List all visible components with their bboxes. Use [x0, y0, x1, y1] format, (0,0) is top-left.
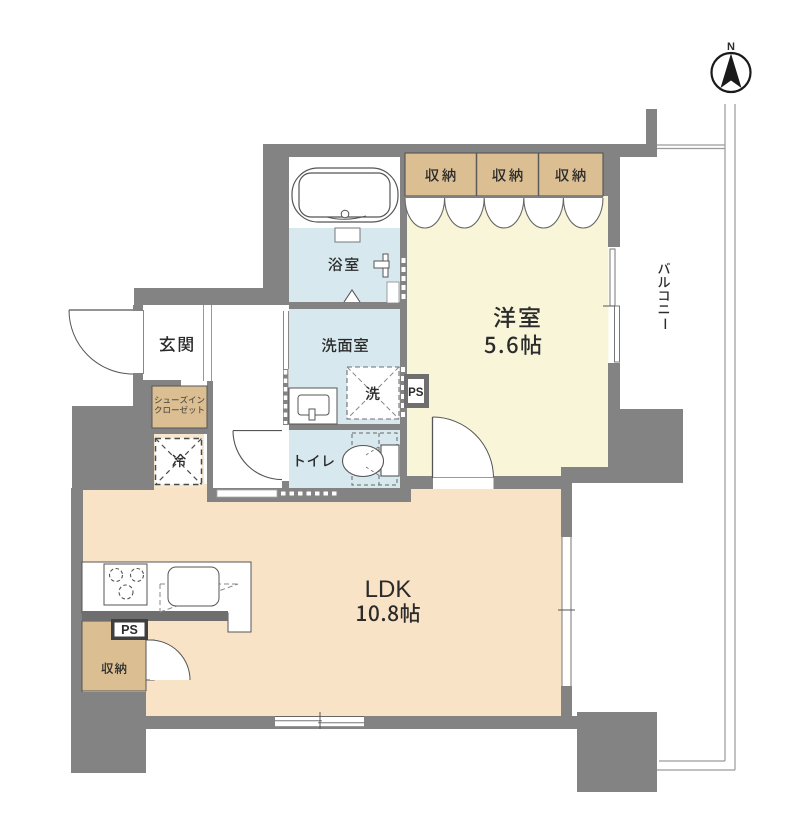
- svg-text:PS: PS: [121, 623, 138, 637]
- svg-text:N: N: [727, 41, 735, 53]
- svg-text:LDK: LDK: [365, 576, 412, 603]
- svg-text:PS: PS: [408, 387, 424, 399]
